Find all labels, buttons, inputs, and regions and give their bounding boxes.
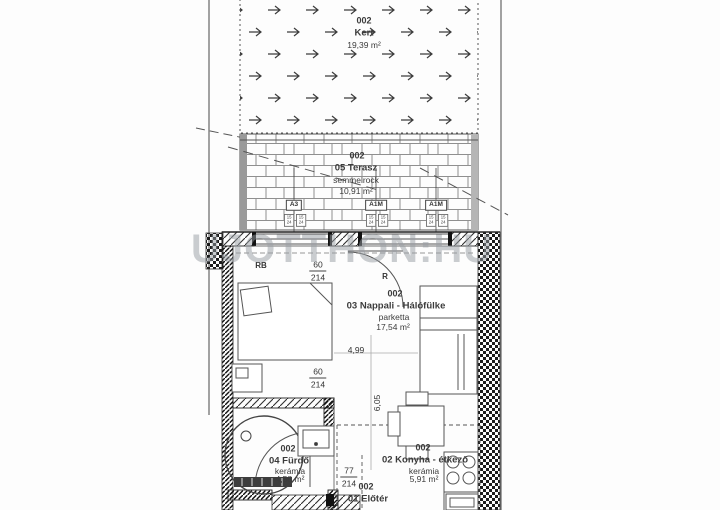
garden-area: 19,39 m² bbox=[347, 41, 381, 50]
kitchen-area: 5,91 m² bbox=[410, 475, 439, 484]
door-mark-rb: RB bbox=[255, 262, 267, 270]
window-sill-mark: 1524 bbox=[438, 214, 448, 227]
window-sill-mark: 1524 bbox=[426, 214, 436, 227]
living-width-dimension: 4,99 bbox=[348, 346, 365, 355]
terrace-area: 10,91 m² bbox=[339, 187, 373, 196]
terrace-door-dimension: 60214 bbox=[309, 260, 326, 283]
living-area: 17,54 m² bbox=[376, 323, 410, 332]
bathroom-room-name: 04 Fürdő bbox=[269, 456, 309, 466]
hall-room-name: 01 Előtér bbox=[348, 494, 388, 504]
bath-door-dimension: 60214 bbox=[309, 367, 326, 390]
living-unit-number: 002 bbox=[387, 290, 402, 299]
garden-unit-number: 002 bbox=[356, 17, 371, 26]
window-tag-a3: A3 bbox=[286, 200, 302, 211]
terrace-room-name: 05 Terasz bbox=[335, 163, 378, 173]
entry-door-dimension: 77214 bbox=[340, 466, 357, 489]
kitchen-room-name: 02 Konyha - étkező bbox=[382, 455, 468, 465]
bathroom-unit-number: 002 bbox=[280, 445, 295, 454]
terrace-unit-number: 002 bbox=[349, 152, 364, 161]
terrace-floor-material: semmelrock bbox=[333, 176, 379, 185]
window-sill-mark: 1524 bbox=[296, 214, 306, 227]
window-sill-mark: 1524 bbox=[284, 214, 294, 227]
window-sill-mark: 1524 bbox=[378, 214, 388, 227]
floor-plan-drawing bbox=[0, 0, 720, 510]
window-tag-a1m-2: A1M bbox=[425, 200, 447, 211]
kitchen-unit-number: 002 bbox=[415, 444, 430, 453]
living-room-name: 03 Nappali - Hálófülke bbox=[347, 301, 446, 311]
door-mark-r: R bbox=[382, 273, 388, 281]
living-depth-dimension: 6,05 bbox=[373, 395, 382, 412]
window-sill-mark: 1524 bbox=[366, 214, 376, 227]
floor-plan: UJOTTHON:HU 002 Kert 19,39 m² 002 05 Ter… bbox=[0, 0, 720, 510]
bathroom-area: 4,58 m² bbox=[276, 475, 305, 484]
hall-unit-number: 002 bbox=[358, 483, 373, 492]
window-tag-a1m-1: A1M bbox=[365, 200, 387, 211]
garden-room-name: Kert bbox=[354, 28, 373, 38]
living-floor-material: parketta bbox=[379, 313, 410, 322]
